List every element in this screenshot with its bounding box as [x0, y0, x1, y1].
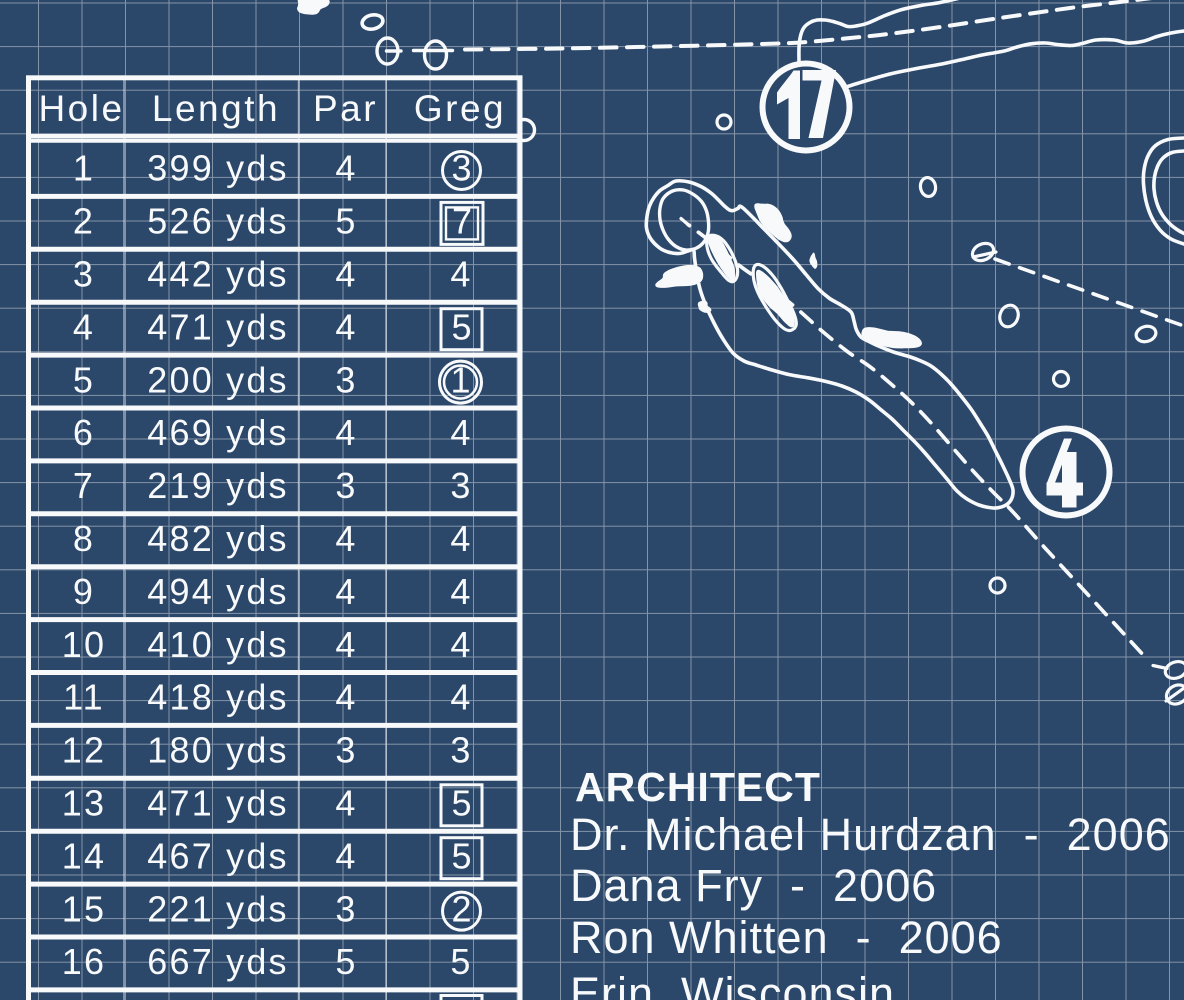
- svg-text:3: 3: [450, 730, 472, 771]
- svg-text:221 yds: 221 yds: [147, 888, 289, 929]
- svg-text:Hole: Hole: [38, 88, 124, 129]
- svg-text:219 yds: 219 yds: [147, 465, 289, 506]
- svg-text:4: 4: [335, 412, 357, 453]
- svg-text:471 yds: 471 yds: [147, 783, 289, 824]
- svg-text:11: 11: [63, 677, 105, 718]
- svg-text:4: 4: [335, 624, 357, 665]
- svg-text:4: 4: [335, 254, 357, 295]
- svg-text:5: 5: [451, 835, 471, 876]
- svg-text:4: 4: [335, 306, 357, 347]
- svg-text:10: 10: [62, 624, 106, 665]
- svg-text:5: 5: [450, 941, 472, 982]
- svg-text:4: 4: [335, 571, 357, 612]
- svg-text:200 yds: 200 yds: [147, 359, 289, 400]
- svg-text:8: 8: [73, 518, 95, 559]
- svg-text:5: 5: [451, 306, 471, 347]
- svg-text:Par: Par: [313, 88, 378, 129]
- svg-text:Erin, Wisconsin: Erin, Wisconsin: [570, 968, 895, 1000]
- svg-text:4: 4: [335, 518, 357, 559]
- svg-text:1: 1: [73, 148, 95, 189]
- svg-text:180 yds: 180 yds: [147, 730, 289, 771]
- svg-text:482 yds: 482 yds: [147, 518, 289, 559]
- svg-text:4: 4: [335, 783, 357, 824]
- svg-text:467 yds: 467 yds: [147, 835, 289, 876]
- svg-text:4: 4: [450, 518, 472, 559]
- svg-text:471 yds: 471 yds: [147, 306, 289, 347]
- svg-text:4: 4: [73, 306, 95, 347]
- svg-text:Dana Fry - 2006: Dana Fry - 2006: [570, 860, 937, 911]
- svg-text:12: 12: [62, 730, 106, 771]
- svg-text:5: 5: [335, 941, 357, 982]
- svg-text:399 yds: 399 yds: [147, 148, 289, 189]
- svg-text:7: 7: [452, 201, 472, 242]
- svg-text:4: 4: [450, 412, 472, 453]
- svg-text:1: 1: [450, 359, 470, 400]
- svg-text:9: 9: [73, 571, 95, 612]
- svg-text:4: 4: [450, 571, 472, 612]
- svg-text:3: 3: [335, 359, 357, 400]
- svg-text:494 yds: 494 yds: [147, 571, 289, 612]
- svg-text:16: 16: [62, 941, 106, 982]
- svg-text:4: 4: [450, 624, 472, 665]
- svg-text:14: 14: [62, 835, 106, 876]
- svg-text:410 yds: 410 yds: [147, 624, 289, 665]
- svg-text:Dr. Michael Hurdzan - 2006: Dr. Michael Hurdzan - 2006: [570, 809, 1171, 860]
- svg-text:2: 2: [451, 888, 471, 929]
- svg-text:Length: Length: [152, 88, 280, 129]
- svg-text:2: 2: [73, 201, 95, 242]
- svg-text:667 yds: 667 yds: [147, 941, 289, 982]
- svg-text:3: 3: [73, 254, 95, 295]
- svg-text:4: 4: [335, 677, 357, 718]
- svg-text:4: 4: [450, 254, 472, 295]
- svg-text:3: 3: [335, 888, 357, 929]
- svg-text:6: 6: [73, 412, 95, 453]
- svg-text:3: 3: [450, 465, 472, 506]
- svg-text:ARCHITECT: ARCHITECT: [575, 764, 821, 810]
- svg-text:442 yds: 442 yds: [147, 254, 289, 295]
- svg-text:526 yds: 526 yds: [147, 201, 289, 242]
- svg-text:3: 3: [451, 148, 471, 189]
- svg-text:5: 5: [451, 783, 471, 824]
- svg-text:469 yds: 469 yds: [147, 412, 289, 453]
- svg-text:5: 5: [73, 359, 95, 400]
- svg-text:3: 3: [335, 465, 357, 506]
- svg-text:Ron Whitten - 2006: Ron Whitten - 2006: [570, 912, 1003, 963]
- svg-text:4: 4: [335, 835, 357, 876]
- svg-text:5: 5: [335, 201, 357, 242]
- svg-text:Greg: Greg: [414, 88, 506, 129]
- svg-text:3: 3: [335, 730, 357, 771]
- svg-text:4: 4: [335, 148, 357, 189]
- svg-text:418 yds: 418 yds: [147, 677, 289, 718]
- svg-text:7: 7: [73, 465, 95, 506]
- svg-text:4: 4: [450, 677, 472, 718]
- svg-text:13: 13: [62, 783, 106, 824]
- svg-text:15: 15: [62, 888, 106, 929]
